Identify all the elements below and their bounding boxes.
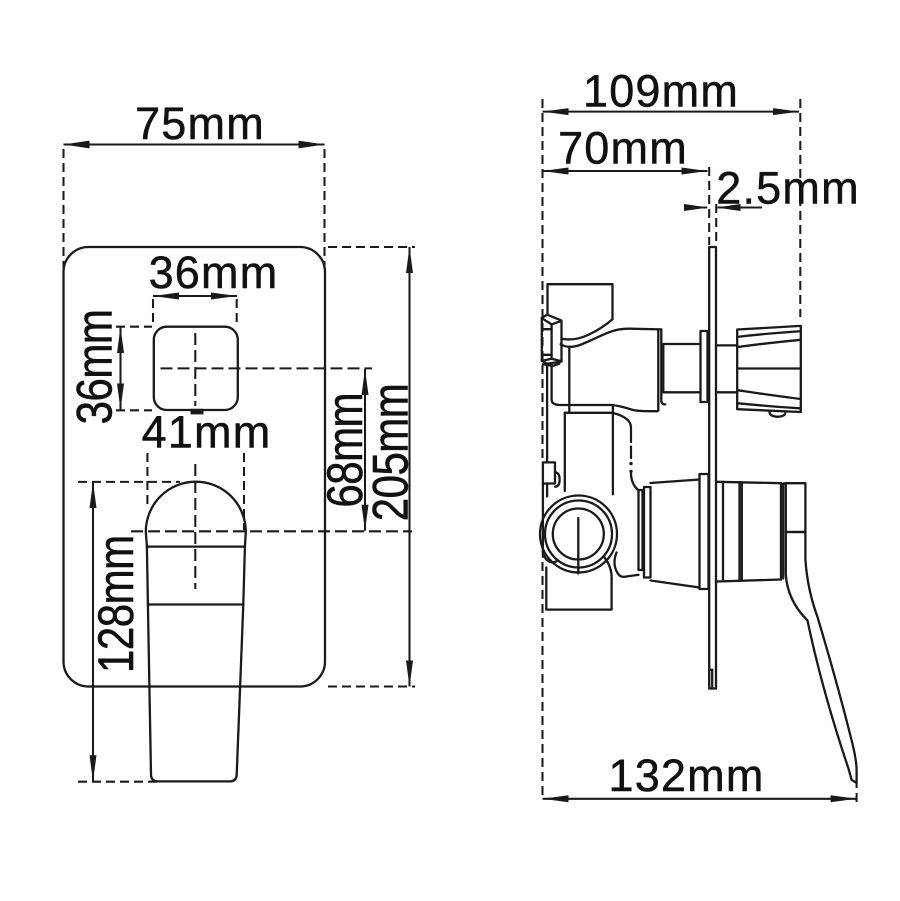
svg-text:205mm: 205mm: [362, 384, 418, 522]
svg-text:128mm: 128mm: [87, 535, 143, 673]
svg-text:70mm: 70mm: [558, 123, 688, 174]
svg-text:36mm: 36mm: [149, 247, 279, 298]
svg-text:2.5mm: 2.5mm: [716, 163, 860, 214]
svg-text:132mm: 132mm: [608, 750, 764, 801]
svg-text:41mm: 41mm: [142, 407, 272, 458]
svg-text:75mm: 75mm: [135, 98, 265, 149]
svg-text:109mm: 109mm: [583, 66, 739, 117]
svg-text:36mm: 36mm: [66, 310, 122, 425]
